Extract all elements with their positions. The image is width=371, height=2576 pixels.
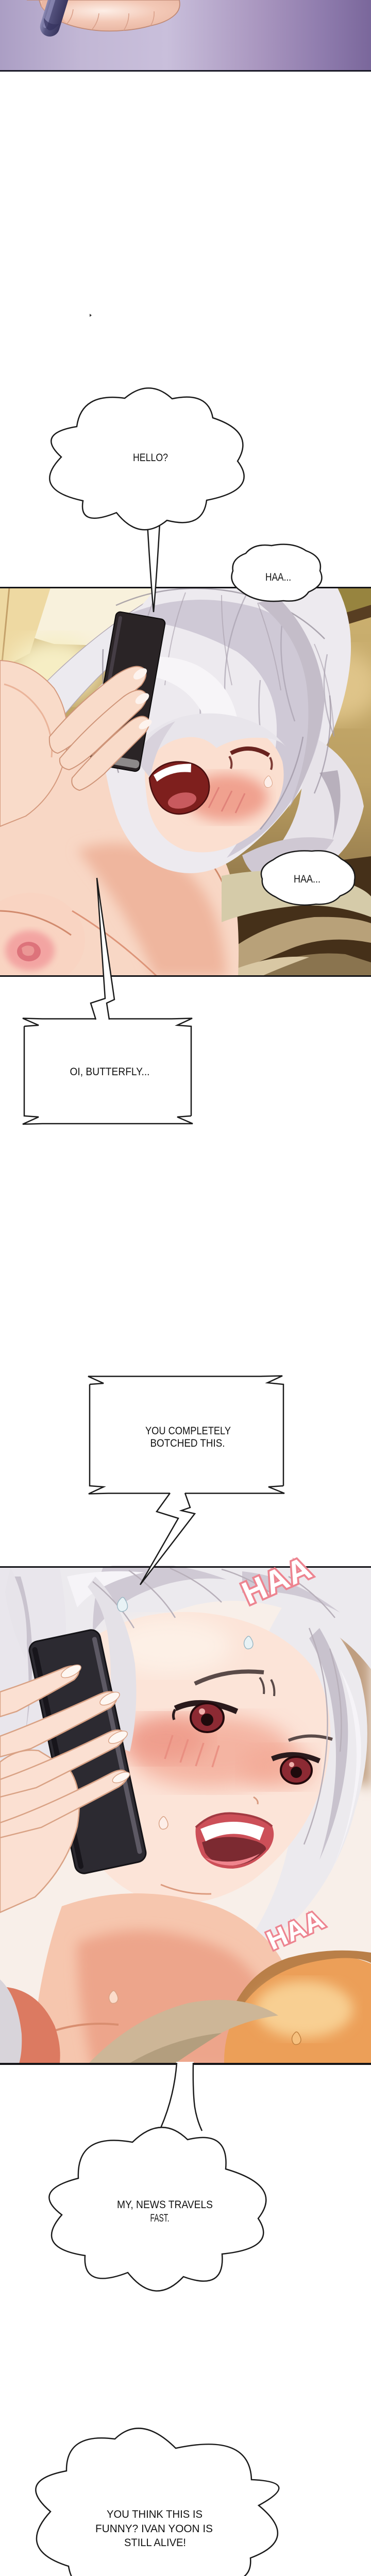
svg-text:MY, NEWS TRAVELS: MY, NEWS TRAVELS: [117, 2199, 213, 2211]
svg-text:FUNNY? IVAN YOON IS: FUNNY? IVAN YOON IS: [95, 2523, 213, 2535]
svg-text:OI, BUTTERFLY...: OI, BUTTERFLY...: [70, 1066, 150, 1078]
svg-text:HELLO?: HELLO?: [133, 452, 168, 464]
svg-text:YOU THINK THIS IS: YOU THINK THIS IS: [107, 2509, 203, 2520]
svg-text:YOU COMPLETELY: YOU COMPLETELY: [145, 1425, 231, 1437]
svg-text:HAA...: HAA...: [265, 571, 291, 583]
svg-text:STILL ALIVE!: STILL ALIVE!: [124, 2537, 186, 2549]
svg-text:FAST.: FAST.: [150, 2212, 170, 2224]
svg-text:HAA...: HAA...: [294, 873, 321, 885]
svg-text:BOTCHED THIS.: BOTCHED THIS.: [150, 1437, 225, 1449]
